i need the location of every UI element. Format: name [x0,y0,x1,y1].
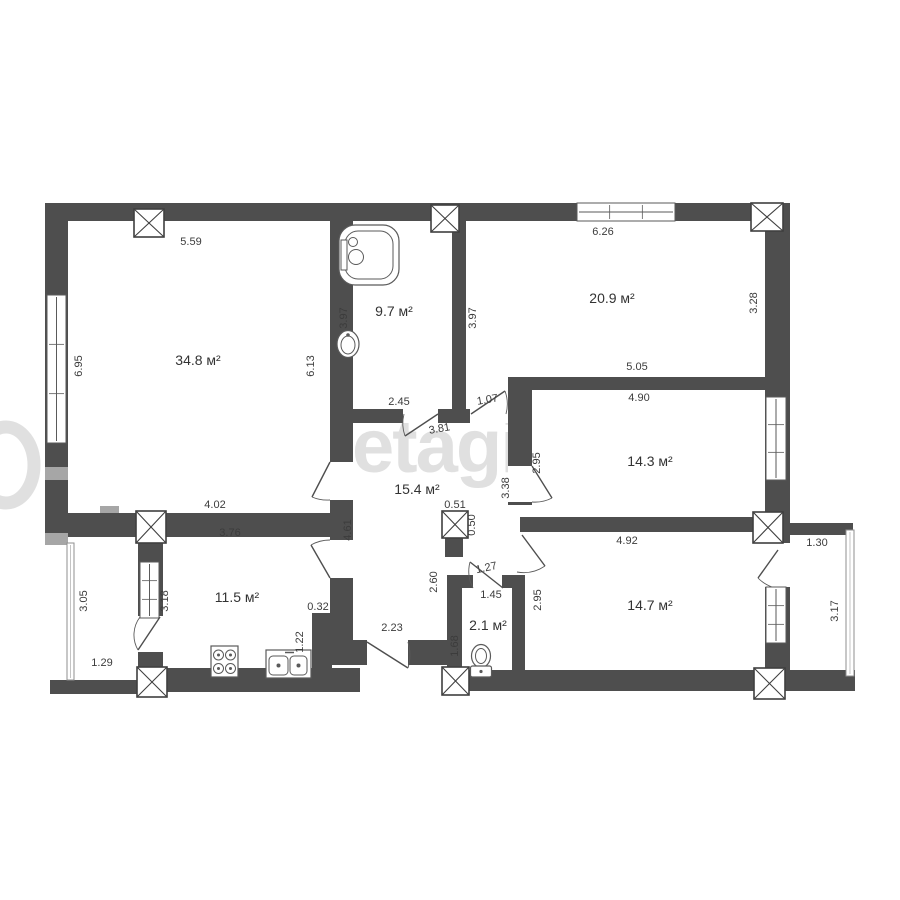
wall-light-segment [45,533,68,545]
dimension-label: 2.23 [381,622,402,634]
room-area-label-room-14-3: 14.3 м² [627,453,673,469]
bathtub-faucet-panel [341,240,347,270]
dimension-label: 3.97 [338,307,350,328]
dimension-label: 2.95 [532,589,544,610]
dimension-label: 1.68 [449,635,461,656]
floor-plan-svg: etagi5.596.266.956.133.973.973.282.451.0… [0,0,900,900]
wall [444,670,855,691]
dimension-label: 4.92 [616,535,637,547]
room-area-label-kitchen: 11.5 м² [215,589,260,605]
wall-light-segment [100,506,119,513]
dimension-label: 3.97 [467,307,479,328]
room-area-label-room-14-7: 14.7 м² [627,597,673,613]
dimension-label: 0.32 [307,601,328,613]
stove-burner-dot [229,667,232,670]
stove-burner-dot [217,667,220,670]
dimension-label: 5.59 [180,236,201,248]
watermark-fragment [0,427,34,503]
dimension-label: 6.13 [305,355,317,376]
stove-burner-dot [229,654,232,657]
wall [520,517,755,532]
kitchen-sink-drain [297,664,301,668]
dimension-label: 2.45 [388,396,409,408]
wall [312,613,332,668]
room-area-label-room-20-9: 20.9 м² [589,290,635,306]
room-14-7-door-arc [517,566,545,573]
dimension-label: 1.22 [294,631,306,652]
toilet-tank-button [479,670,482,673]
dimension-label: 3.38 [500,477,512,498]
wall [782,523,853,535]
living-room-door-arc [312,497,330,500]
door-opening [367,640,408,665]
room-area-label-hallway: 15.4 м² [394,481,440,497]
wall-light-segment [45,467,68,480]
dimension-label: 6.95 [73,355,85,376]
door-opening [765,543,790,587]
dimension-label: 2.95 [531,452,543,473]
living-room-door-leaf [312,462,330,497]
toilet-bowl [472,645,491,668]
dimension-label: 1.27 [475,560,498,576]
dimension-label: 3.18 [159,590,171,611]
wall [512,587,525,671]
dimension-label: 1.30 [806,537,827,549]
wall [160,668,360,692]
door-opening [403,409,438,423]
dimension-label: 1.45 [480,589,501,601]
bathroom-sink-tap-dot [346,333,350,337]
wall [452,221,466,409]
wall [45,513,335,537]
room-area-label-bathroom: 9.7 м² [375,303,413,319]
bathtub [339,225,399,285]
room-14-3-door-arc [532,498,552,502]
dimension-label: 0.50 [466,514,478,535]
dimension-label: 3.76 [219,527,240,539]
floor-plan-page: etagi5.596.266.956.133.973.973.282.451.0… [0,0,900,900]
dimension-label: 2.60 [428,571,440,592]
kitchen-sink-drain [277,664,281,668]
room-area-label-wc: 2.1 м² [469,617,507,633]
dimension-label: 5.05 [626,361,647,373]
dimension-label: 3.17 [829,600,841,621]
door-opening [330,540,353,578]
room-14-7-door-leaf [522,535,545,566]
kitchen-door-leaf [311,545,330,578]
dimension-label: 0.51 [444,499,465,511]
wall [445,537,463,557]
dimension-label: 3.28 [748,292,760,313]
room-area-label-living-room: 34.8 м² [175,352,221,368]
door-opening [330,462,353,500]
kitchen-door-arc [311,540,330,545]
dimension-label: 4.90 [628,392,649,404]
door-opening [138,616,163,652]
wall [508,377,765,390]
dimension-label: 1.29 [91,657,112,669]
dimension-label: 6.26 [592,226,613,238]
dimension-label: 4.61 [342,519,354,540]
dimension-label: 3.05 [78,590,90,611]
stove-burner-dot [217,654,220,657]
wall [502,575,525,588]
dimension-label: 4.02 [204,499,225,511]
